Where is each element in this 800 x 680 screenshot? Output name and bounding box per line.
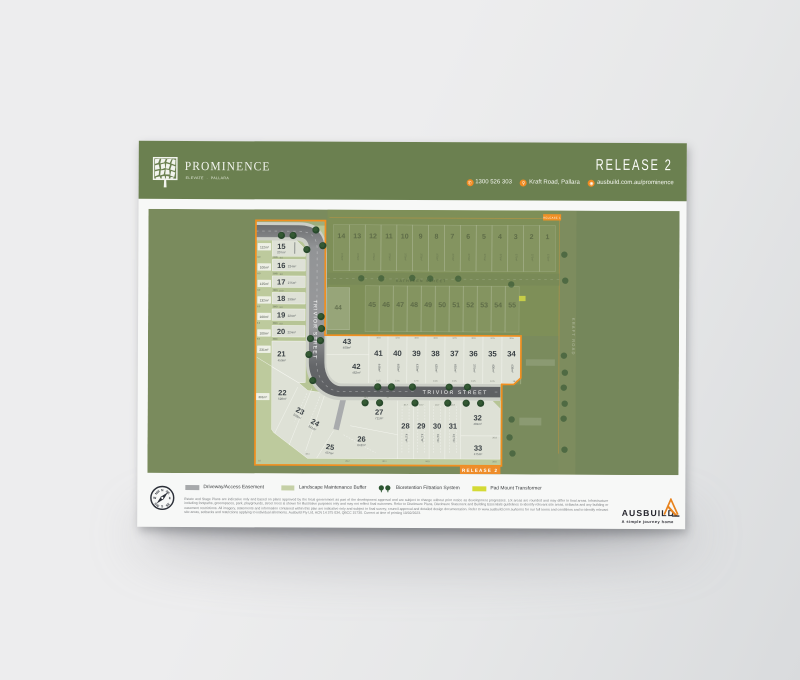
svg-text:3: 3 [514, 234, 518, 241]
svg-text:375m²: 375m² [483, 254, 487, 262]
svg-text:417m²: 417m² [420, 434, 424, 443]
svg-text:375m²: 375m² [340, 253, 344, 261]
svg-text:450m²: 450m² [453, 364, 457, 373]
svg-text:55: 55 [508, 302, 516, 309]
svg-text:29: 29 [417, 422, 425, 431]
svg-text:17: 17 [277, 277, 285, 286]
svg-text:S: S [161, 504, 163, 508]
svg-text:375m²: 375m² [472, 364, 476, 373]
svg-text:BND: BND [273, 323, 278, 325]
svg-text:417m²: 417m² [404, 434, 408, 443]
svg-text:224m²: 224m² [288, 314, 297, 318]
svg-text:642m²: 642m² [357, 443, 366, 447]
svg-text:50: 50 [438, 302, 446, 309]
svg-text:224m²: 224m² [288, 330, 297, 334]
svg-text:375m²: 375m² [388, 253, 392, 261]
svg-text:W: W [153, 496, 156, 500]
svg-text:400m²: 400m² [343, 346, 352, 350]
svg-text:711m²: 711m² [375, 416, 383, 420]
svg-text:405m²: 405m² [396, 364, 400, 373]
svg-text:TRIVIOR STREET: TRIVIOR STREET [423, 390, 488, 396]
svg-text:53: 53 [480, 302, 488, 309]
svg-text:4: 4 [498, 234, 502, 241]
svg-text:49: 49 [424, 302, 432, 309]
svg-text:207m²: 207m² [277, 250, 286, 254]
svg-text:13: 13 [353, 233, 361, 240]
svg-text:375m²: 375m² [372, 253, 376, 261]
svg-text:375m²: 375m² [499, 254, 503, 262]
svg-text:100m²: 100m² [259, 332, 268, 336]
svg-text:448m²: 448m² [377, 364, 381, 373]
svg-text:112m²: 112m² [260, 245, 269, 249]
svg-text:275m²: 275m² [288, 281, 297, 285]
svg-text:462m²: 462m² [352, 371, 361, 375]
svg-text:10.7: 10.7 [403, 404, 408, 406]
svg-text:BND: BND [273, 306, 278, 308]
svg-text:7: 7 [450, 234, 454, 241]
svg-text:375m²: 375m² [467, 254, 471, 262]
svg-text:1: 1 [545, 234, 549, 241]
svg-text:RELEASE 2: RELEASE 2 [462, 468, 498, 473]
svg-text:19: 19 [277, 310, 285, 319]
svg-text:41: 41 [374, 349, 383, 358]
svg-text:44: 44 [334, 305, 342, 312]
svg-text:400m²: 400m² [491, 364, 495, 373]
svg-text:5: 5 [482, 234, 486, 241]
svg-text:9: 9 [419, 234, 423, 241]
svg-text:35: 35 [488, 349, 497, 358]
svg-text:417m²: 417m² [452, 434, 456, 443]
svg-text:38: 38 [431, 349, 440, 358]
svg-text:34: 34 [507, 349, 516, 358]
svg-text:528m²: 528m² [278, 397, 287, 401]
svg-text:6: 6 [466, 234, 470, 241]
svg-text:301m²: 301m² [258, 395, 267, 399]
svg-text:48: 48 [410, 302, 418, 309]
svg-text:21: 21 [277, 349, 285, 358]
svg-text:46: 46 [382, 302, 390, 309]
svg-text:290m²: 290m² [288, 297, 297, 301]
svg-text:39: 39 [412, 349, 421, 358]
svg-text:16: 16 [277, 261, 285, 270]
svg-text:BND: BND [273, 273, 278, 275]
svg-text:430m²: 430m² [415, 364, 419, 373]
svg-text:100m²: 100m² [260, 266, 269, 270]
svg-text:375m²: 375m² [356, 253, 360, 261]
svg-text:KATHLEEN STREET: KATHLEEN STREET [396, 279, 446, 283]
svg-text:125m²: 125m² [260, 282, 269, 286]
svg-text:475m²: 475m² [474, 452, 483, 456]
svg-text:375m²: 375m² [451, 253, 455, 261]
svg-text:375m²: 375m² [531, 254, 535, 262]
svg-text:2: 2 [530, 234, 534, 241]
svg-text:TRIVIOR STREET: TRIVIOR STREET [311, 300, 317, 360]
svg-text:438m²: 438m² [510, 364, 514, 373]
svg-text:420m²: 420m² [434, 364, 438, 373]
svg-text:E: E [169, 496, 171, 500]
svg-text:10: 10 [401, 233, 409, 240]
svg-text:417m²: 417m² [436, 434, 440, 443]
svg-text:11: 11 [385, 233, 393, 240]
svg-text:401m²: 401m² [473, 422, 482, 426]
svg-text:54: 54 [494, 302, 502, 309]
svg-text:RELEASE 1: RELEASE 1 [543, 216, 561, 220]
svg-text:12: 12 [369, 233, 377, 240]
svg-text:47: 47 [396, 302, 404, 309]
svg-text:BND: BND [273, 290, 278, 292]
svg-text:28: 28 [401, 421, 409, 430]
svg-text:132m²: 132m² [260, 299, 269, 303]
svg-text:8: 8 [434, 234, 438, 241]
svg-text:40: 40 [393, 349, 402, 358]
svg-text:231m²: 231m² [259, 348, 268, 352]
svg-text:20: 20 [277, 327, 285, 336]
svg-text:KRAFT ROAD: KRAFT ROAD [571, 318, 576, 356]
svg-text:375m²: 375m² [515, 254, 519, 262]
svg-text:375m²: 375m² [404, 253, 408, 261]
svg-text:459m²: 459m² [278, 358, 287, 362]
svg-text:52: 52 [466, 302, 474, 309]
svg-text:BND: BND [273, 257, 278, 259]
svg-text:30: 30 [433, 422, 441, 431]
svg-text:375m²: 375m² [420, 253, 424, 261]
svg-text:224m²: 224m² [288, 264, 297, 268]
svg-text:37: 37 [450, 349, 459, 358]
svg-text:14: 14 [337, 233, 345, 240]
svg-text:31: 31 [449, 422, 457, 431]
svg-text:51: 51 [452, 302, 460, 309]
svg-text:BND: BND [273, 339, 278, 341]
svg-text:375m²: 375m² [435, 253, 439, 261]
svg-text:45: 45 [368, 302, 376, 309]
svg-text:18: 18 [277, 294, 285, 303]
svg-text:100m²: 100m² [260, 315, 269, 319]
svg-text:375m²: 375m² [546, 254, 550, 262]
svg-text:36: 36 [469, 349, 478, 358]
